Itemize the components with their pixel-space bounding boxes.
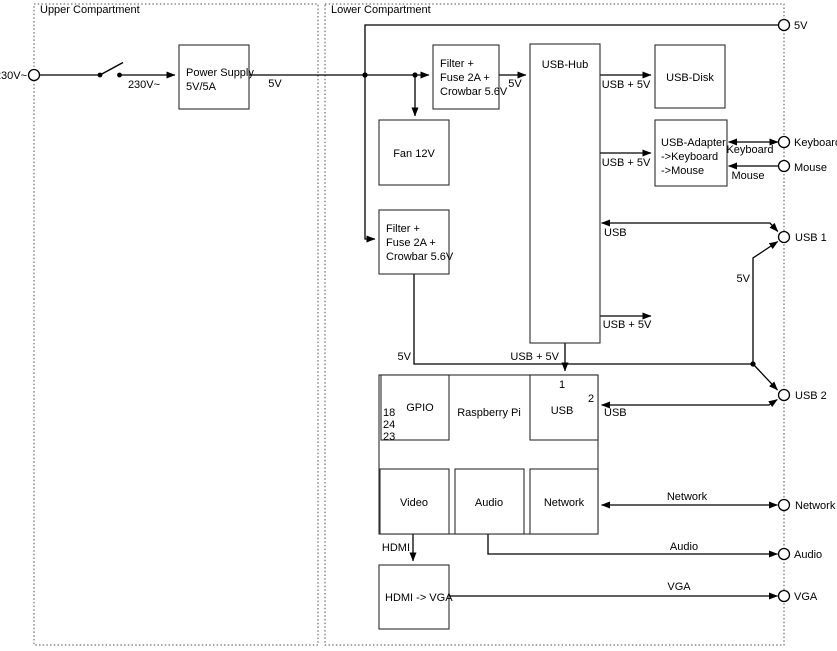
wire-label-rail-5v: 5V <box>737 273 751 285</box>
switch-contact-dot <box>98 73 103 78</box>
pi-usb-label: USB <box>551 405 574 417</box>
wire-label-psu-out: 5V <box>268 78 282 90</box>
pi-usb-port1-label: 1 <box>559 379 565 391</box>
raspberry-pi-label: Raspberry Pi <box>457 407 521 419</box>
wire-label-to-disk: USB + 5V <box>602 79 651 91</box>
wire-label-usb2-data: USB <box>604 407 627 419</box>
junction-dot <box>362 72 367 77</box>
wire-label-spare: USB + 5V <box>603 319 652 331</box>
wire-usb2-data <box>602 400 778 406</box>
wire-label-to-adapter: USB + 5V <box>602 157 651 169</box>
wire-label-mains-switched: 230V~ <box>128 79 160 91</box>
terminal-usb2 <box>779 390 790 401</box>
wire-label-to-pi: USB + 5V <box>510 351 559 363</box>
pi-network-label: Network <box>544 497 585 509</box>
usb-hub-label: USB-Hub <box>542 59 588 71</box>
usb-adapter-label: USB-Adapter <box>661 137 726 149</box>
terminal-5v <box>779 20 790 31</box>
pi-usb-port2-label: 2 <box>588 393 594 405</box>
wire-label-hdmi: HDMI <box>382 542 410 554</box>
lower-compartment-label: Lower Compartment <box>331 4 431 16</box>
usb-adapter-mouse: ->Mouse <box>661 165 704 177</box>
terminal-label-vga: VGA <box>794 591 818 603</box>
wire-label-audio: Audio <box>670 541 698 553</box>
gpio-pin-18: 18 <box>383 407 395 419</box>
power-supply-rating: 5V/5A <box>186 81 217 93</box>
usb-disk-label: USB-Disk <box>666 72 714 84</box>
terminal-label-network: Network <box>795 500 836 512</box>
wire-rail-to-usb1 <box>753 242 778 365</box>
pi-video-label: Video <box>400 497 428 509</box>
wire-label-keyboard: Keyboard <box>726 144 773 156</box>
usb-hub-box <box>530 44 600 343</box>
junction-dot <box>412 72 417 77</box>
circuit-diagram: Upper Compartment Lower Compartment Powe… <box>0 0 837 651</box>
wire-label-usb1-data: USB <box>604 227 627 239</box>
junction-dot <box>750 361 755 366</box>
filter-top-label: Filter + <box>440 58 474 70</box>
power-supply-label: Power Supply <box>186 67 254 79</box>
terminal-label-usb2: USB 2 <box>795 390 827 402</box>
wire-label-hub-in: 5V <box>508 78 522 90</box>
circuit-diagram-svg: Upper Compartment Lower Compartment Powe… <box>0 0 837 651</box>
filter-mid-fuse: Fuse 2A + <box>386 237 436 249</box>
terminal-usb1 <box>779 232 790 243</box>
filter-mid-crowbar: Crowbar 5.6V <box>386 251 454 263</box>
terminal-vga <box>779 591 790 602</box>
gpio-pin-24: 24 <box>383 419 395 431</box>
fan-label: Fan 12V <box>393 148 435 160</box>
wire-label-network: Network <box>667 491 708 503</box>
hdmi-vga-label: HDMI -> VGA <box>385 592 453 604</box>
wire-rail-to-usb2 <box>753 364 778 390</box>
filter-top-fuse: Fuse 2A + <box>440 72 490 84</box>
switch-contact-dot <box>117 73 122 78</box>
wire-usb1-data <box>602 223 778 232</box>
gpio-label: GPIO <box>406 402 434 414</box>
wire-label-mouse: Mouse <box>731 170 764 182</box>
terminal-label-usb1: USB 1 <box>795 232 827 244</box>
upper-compartment-label: Upper Compartment <box>40 4 140 16</box>
filter-top-crowbar: Crowbar 5.6V <box>440 86 508 98</box>
gpio-pin-23: 23 <box>383 431 395 443</box>
pi-audio-label: Audio <box>475 497 503 509</box>
terminal-label-audio: Audio <box>794 549 822 561</box>
usb-adapter-keyboard: ->Keyboard <box>661 151 718 163</box>
terminal-network <box>779 500 790 511</box>
terminal-label-keyboard: Keyboard <box>794 137 837 149</box>
filter-mid-label: Filter + <box>386 223 420 235</box>
terminal-mouse <box>779 161 790 172</box>
terminal-label-mains: 230V~ <box>0 70 27 82</box>
terminal-label-mouse: Mouse <box>794 162 827 174</box>
wire-label-vga: VGA <box>667 581 691 593</box>
upper-compartment-outline <box>34 4 318 645</box>
terminal-keyboard <box>779 137 790 148</box>
wire-label-filter-out: 5V <box>398 351 412 363</box>
terminal-audio <box>779 549 790 560</box>
terminal-mains <box>29 70 40 81</box>
terminal-label-5v: 5V <box>794 20 808 32</box>
wire-audio <box>488 534 778 554</box>
